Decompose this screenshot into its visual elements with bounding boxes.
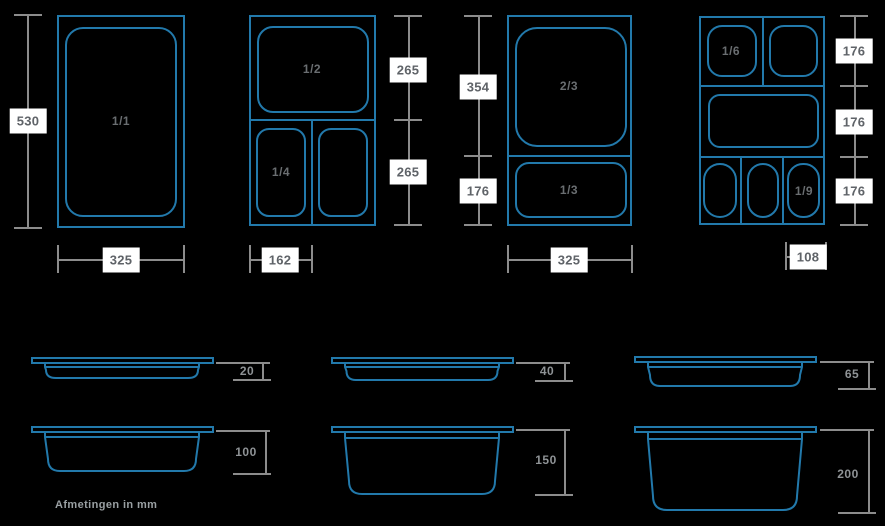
depth-dimension-line [868,429,870,513]
pan-side-view-200 [634,426,818,513]
pan-well [747,163,779,218]
depth-dimension-label: 40 [540,364,554,378]
pan-well [703,163,737,218]
dimension-cap [840,85,868,87]
divider-line [699,85,825,87]
dimension-cap [394,224,422,226]
dimension-cap [14,227,42,229]
dimension-cap [464,15,492,17]
divider-line [507,155,632,157]
divider-line [762,16,764,85]
height-dimension-label: 265 [390,160,427,185]
height-dimension-label: 530 [10,109,47,134]
height-dimension-label: 265 [390,58,427,83]
divider-line [740,156,742,225]
depth-dimension-line [868,361,870,389]
dimension-cap [57,245,59,273]
width-dimension-label: 162 [262,248,299,273]
depth-extension-line [820,361,874,363]
depth-extension-line [820,429,874,431]
depth-dimension-line [262,362,264,380]
dimension-cap [311,245,313,273]
dimension-cap [785,242,787,270]
dimension-cap [249,245,251,273]
depth-dimension-line [564,429,566,495]
divider-line [311,119,313,226]
depth-extension-line [838,512,876,514]
depth-extension-line [516,429,570,431]
dimension-cap [840,15,868,17]
dimension-cap [464,155,492,157]
pan-side-view-20 [31,357,215,381]
depth-extension-line [216,430,270,432]
pan-size-label: 1/4 [272,165,290,179]
gastronorm-diagram: 530 1/1 325 1/2 1/4 265 265 162 2/ [0,0,885,526]
pan-size-label: 1/1 [112,114,130,128]
pan-size-label: 1/6 [722,44,740,58]
height-dimension-label: 176 [460,179,497,204]
depth-dimension-label: 65 [845,367,859,381]
pan-size-label: 1/3 [560,183,578,197]
width-dimension-label: 325 [551,248,588,273]
depth-dimension-label: 150 [535,453,557,467]
pan-well [708,94,819,148]
depth-extension-line [535,494,573,496]
depth-dimension-line [564,362,566,382]
depth-extension-line [233,473,271,475]
dimension-cap [14,14,42,16]
height-dimension-label: 354 [460,75,497,100]
dimension-cap [394,119,422,121]
pan-well [318,128,368,217]
divider-line [782,156,784,225]
pan-side-view-150 [331,426,515,497]
width-dimension-label: 325 [103,248,140,273]
depth-extension-line [838,388,876,390]
dimension-cap [507,245,509,273]
depth-extension-line [233,379,271,381]
divider-line [699,156,825,158]
depth-dimension-label: 100 [235,445,257,459]
dimension-cap [394,15,422,17]
footnote: Afmetingen in mm [55,499,157,511]
depth-dimension-label: 200 [837,467,859,481]
dimension-cap [840,156,868,158]
height-dimension-label: 176 [836,179,873,204]
height-dimension-line [408,16,410,225]
width-dimension-label: 108 [790,245,827,270]
pan-size-label: 1/9 [795,184,813,198]
pan-well [769,25,818,77]
pan-size-label: 2/3 [560,79,578,93]
dimension-cap [183,245,185,273]
height-dimension-label: 176 [836,110,873,135]
pan-side-view-65 [634,356,818,389]
dimension-cap [840,224,868,226]
depth-dimension-line [265,430,267,474]
pan-side-view-100 [31,426,215,474]
pan-side-view-40 [331,357,515,383]
dimension-cap [631,245,633,273]
pan-size-label: 1/2 [303,62,321,76]
dimension-cap [464,224,492,226]
depth-extension-line [535,380,573,382]
depth-dimension-label: 20 [240,364,254,378]
height-dimension-label: 176 [836,39,873,64]
